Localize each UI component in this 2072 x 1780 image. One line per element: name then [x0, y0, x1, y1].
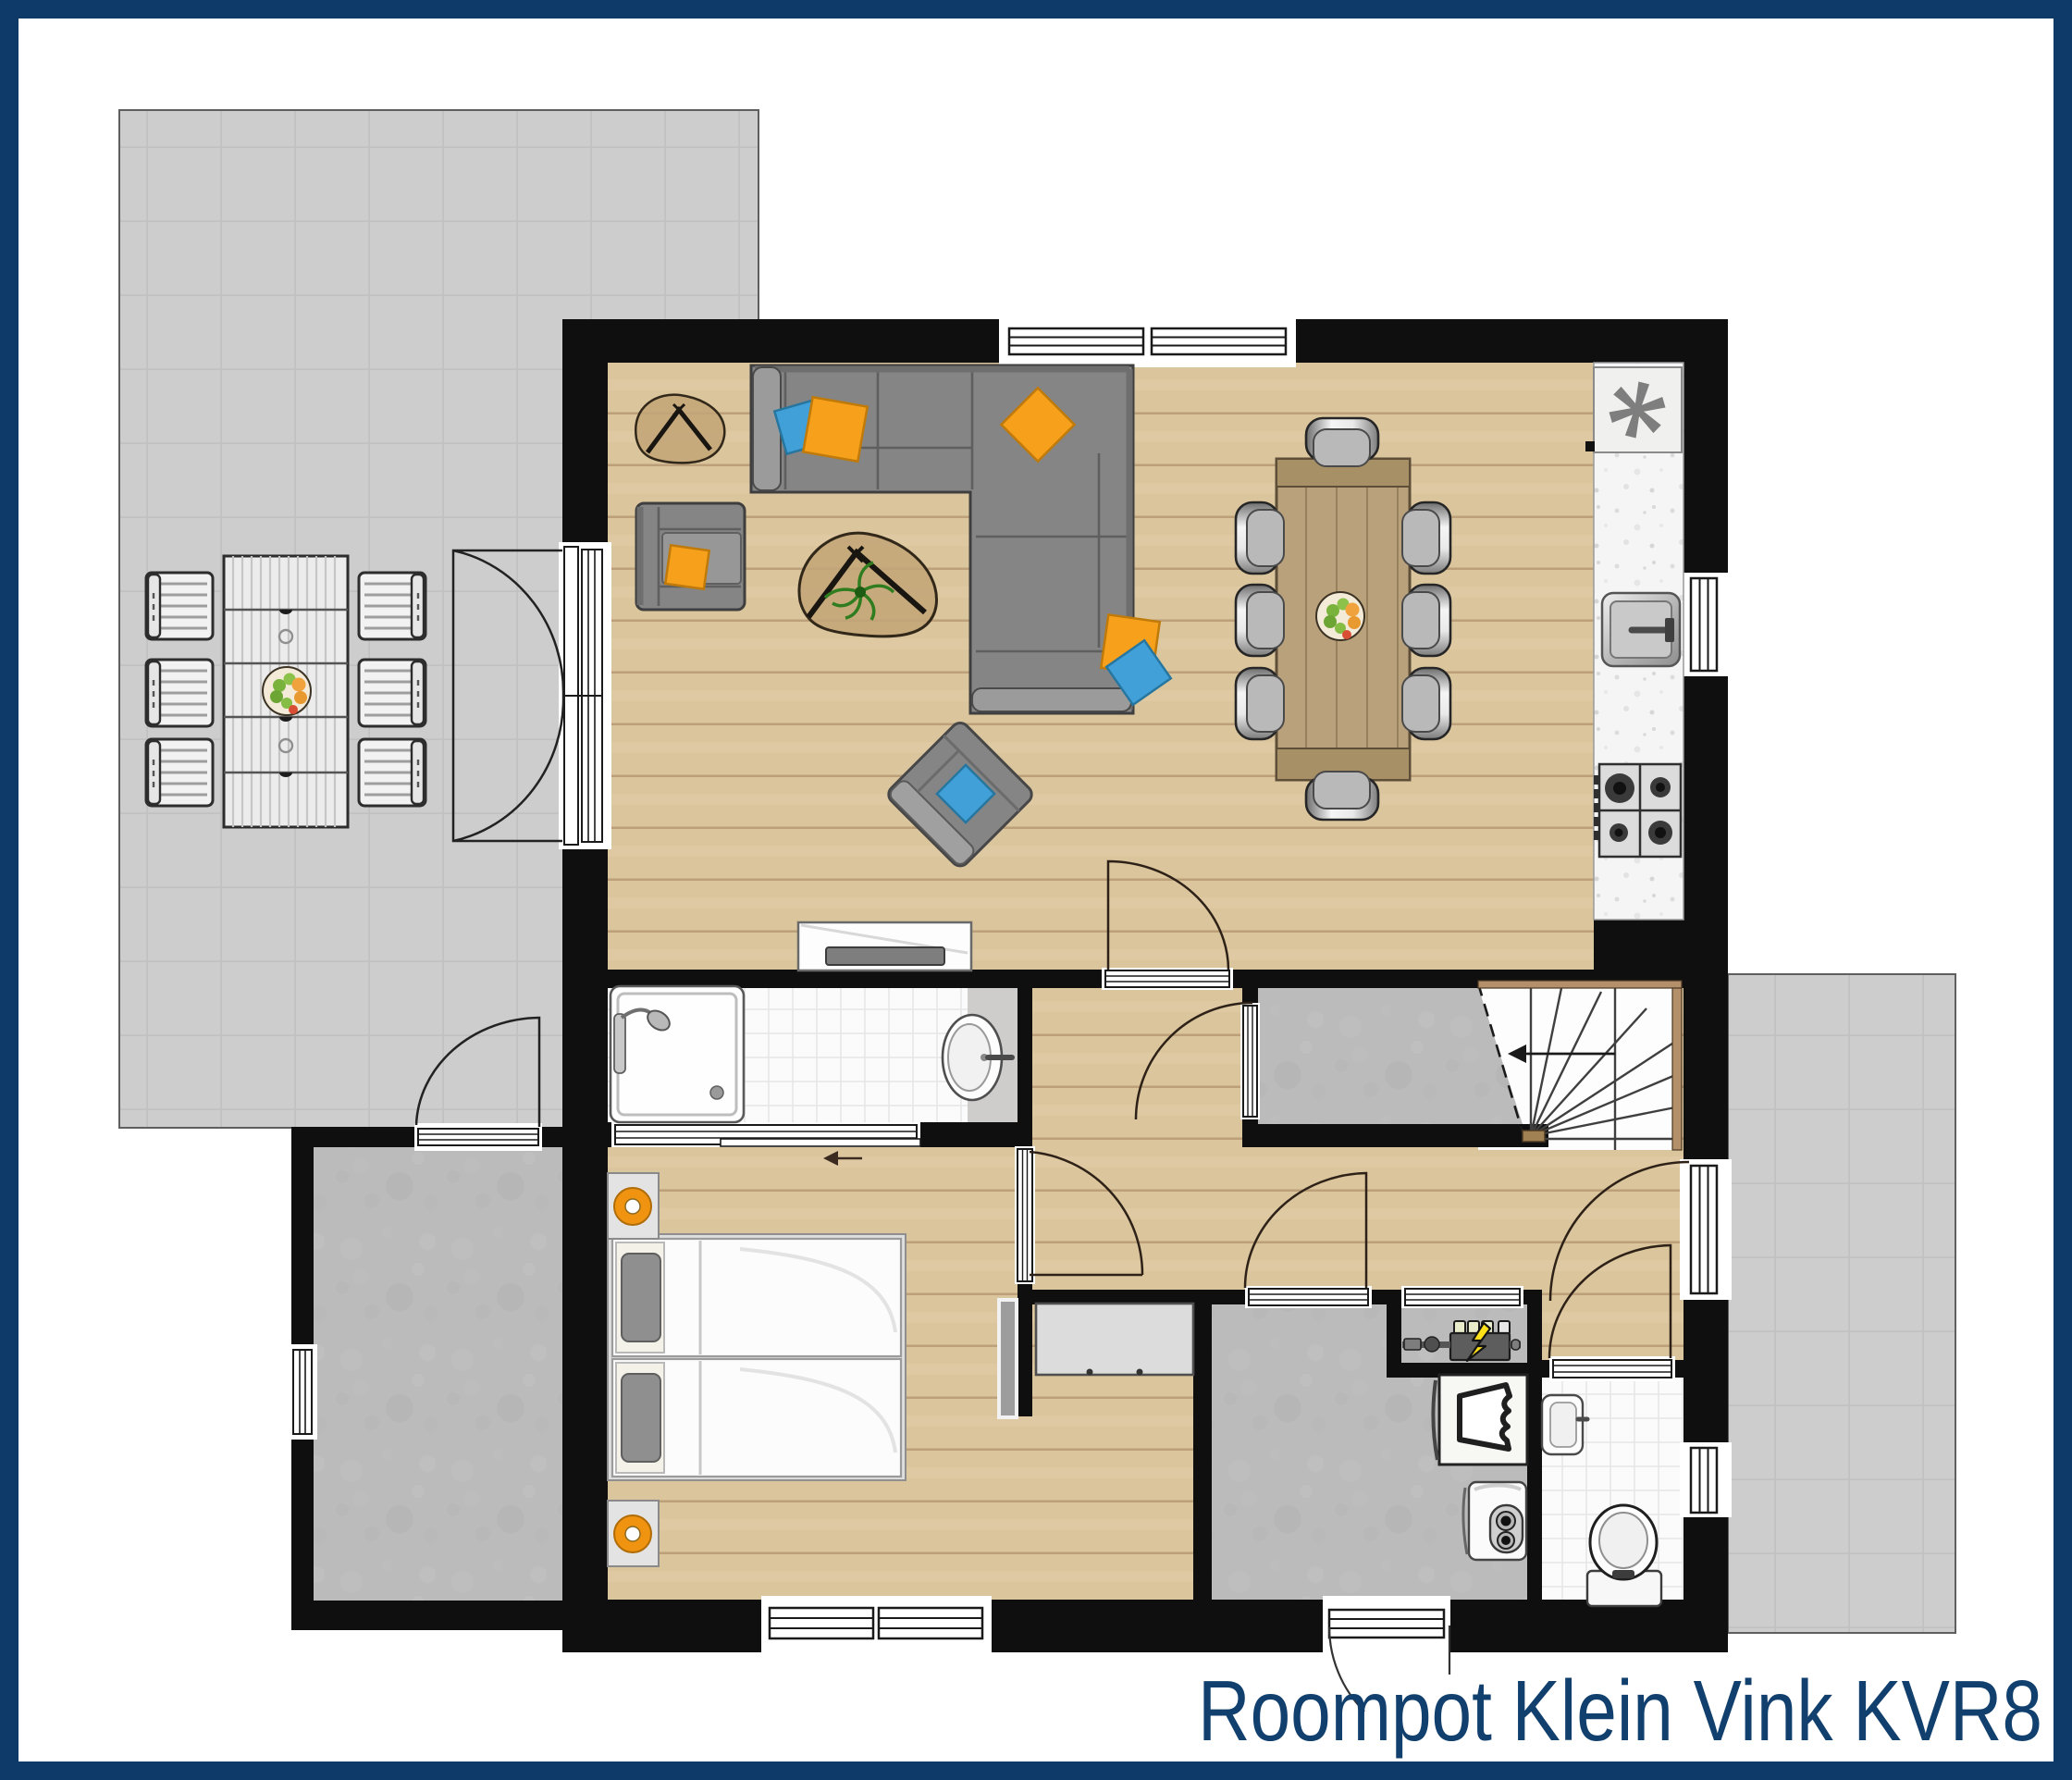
svg-text:Roompot Klein Vink KVR8: Roompot Klein Vink KVR8: [1198, 1663, 2042, 1759]
